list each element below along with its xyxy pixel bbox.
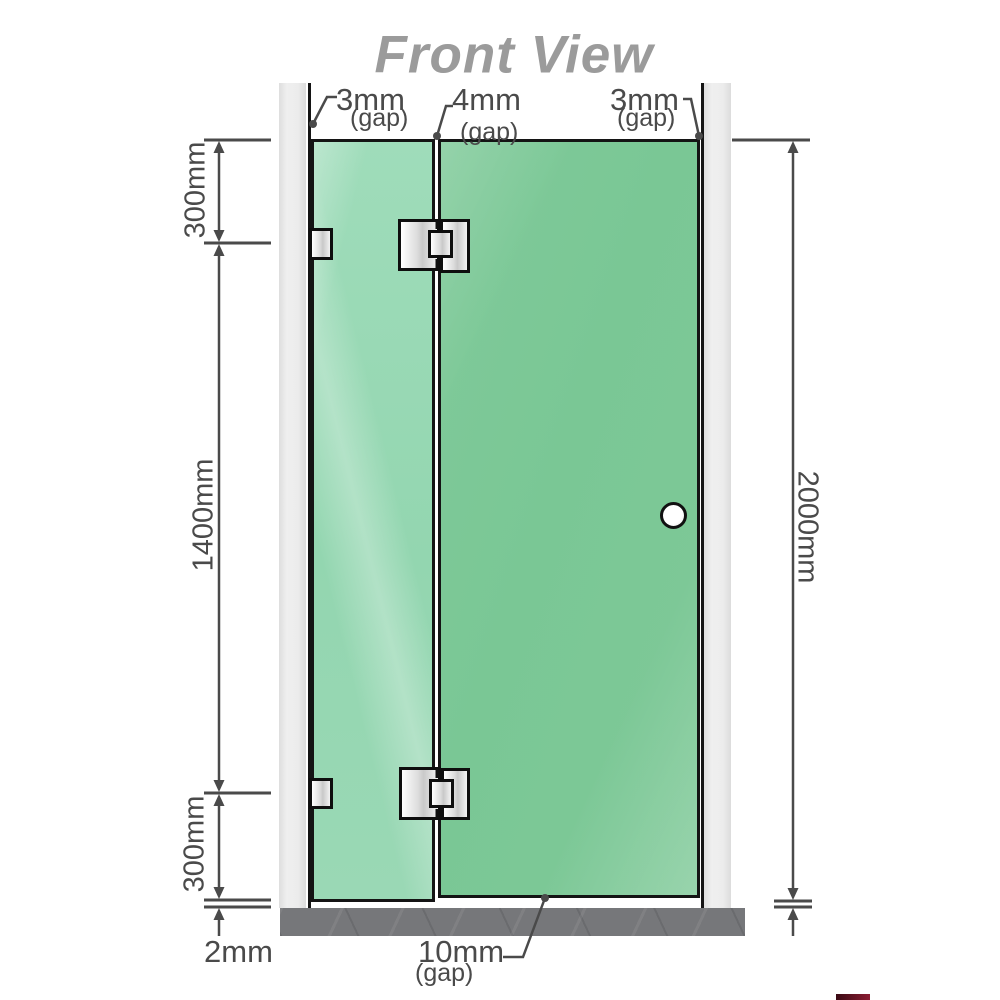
wall-post-right	[704, 83, 731, 908]
label-gap-top-right-sub: (gap)	[617, 106, 675, 131]
page-title: Front View	[375, 25, 654, 86]
label-dim-bottom-left: 2mm	[204, 936, 273, 967]
bottom-hinge-connector	[429, 779, 454, 808]
wall-bracket-top	[309, 228, 333, 260]
watermark-fragment	[836, 994, 870, 1000]
door-knob	[660, 502, 687, 529]
wall-post-left	[279, 83, 306, 908]
label-gap-top-middle-sub: (gap)	[460, 120, 518, 145]
top-hinge-connector	[428, 230, 453, 258]
front-view-diagram: Front View	[0, 0, 1000, 1000]
floor-base	[280, 908, 745, 936]
label-gap-top-middle: 4mm	[452, 84, 521, 115]
label-gap-top-left-sub: (gap)	[350, 106, 408, 131]
label-dim-left-top: 300mm	[182, 142, 211, 239]
wall-channel-right	[701, 83, 704, 908]
label-dim-left-bottom: 300mm	[181, 796, 210, 893]
label-dim-left-middle: 1400mm	[190, 459, 219, 572]
wall-bracket-bottom	[309, 778, 333, 809]
label-gap-bottom-sub: (gap)	[415, 961, 473, 986]
label-dim-right-total: 2000mm	[793, 471, 822, 584]
